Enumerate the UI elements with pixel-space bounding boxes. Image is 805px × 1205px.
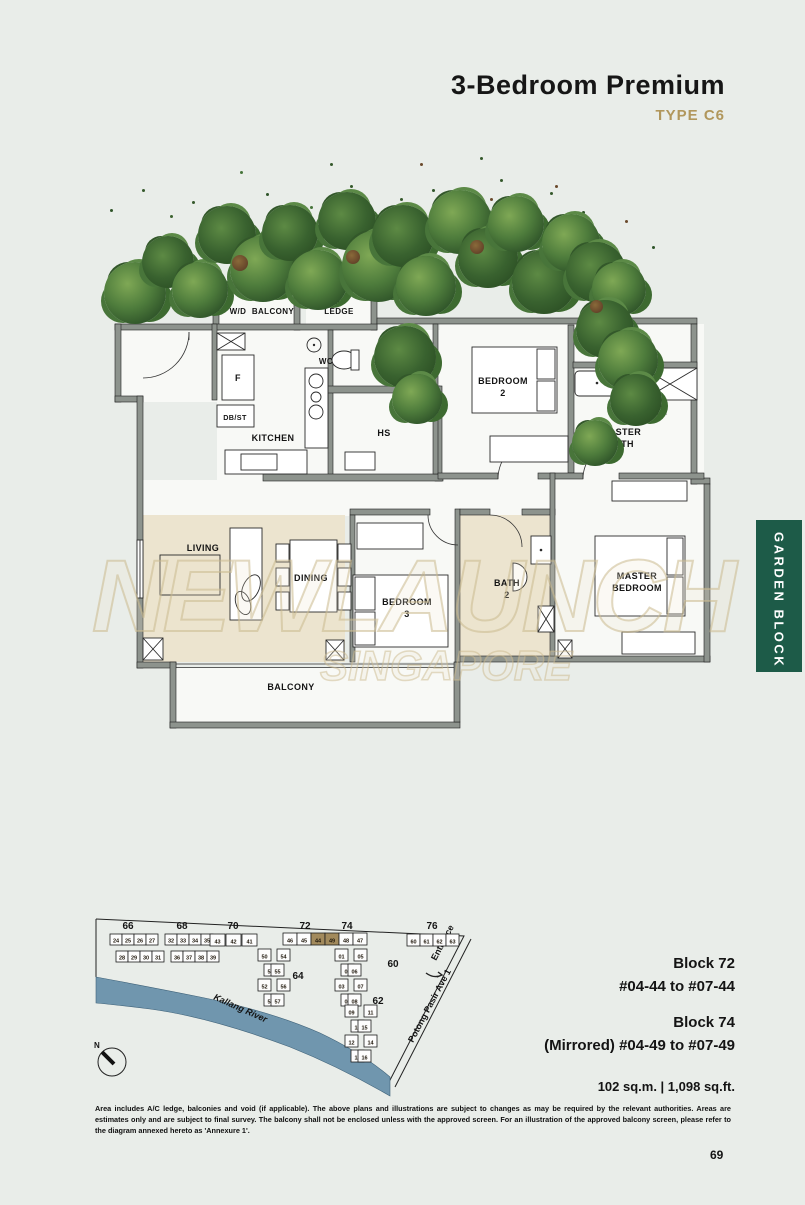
site-unit-number: 16 — [361, 1055, 367, 1061]
ac-ledge-top-floor — [306, 288, 371, 324]
site-unit-number: 30 — [143, 956, 149, 962]
site-unit-number: 60 — [410, 939, 416, 945]
header: 3-Bedroom Premium TYPE C6 — [451, 70, 725, 124]
site-unit-number: 03 — [338, 984, 344, 990]
garden-block-tab-label: GARDEN BLOCK — [772, 520, 787, 672]
hs-step — [345, 452, 375, 470]
site-unit-number: 26 — [137, 939, 143, 945]
site-unit-number: 37 — [186, 956, 192, 962]
site-unit-number: 06 — [351, 969, 357, 975]
foliage-speckles — [240, 250, 243, 253]
wd-balcony-floor — [219, 288, 294, 324]
site-unit-number: 46 — [287, 938, 293, 944]
tree-icon — [372, 205, 434, 267]
site-unit-number: 29 — [131, 956, 137, 962]
site-unit-number: 48 — [343, 938, 349, 944]
site-unit-number: 43 — [214, 939, 220, 945]
site-unit-number: 09 — [348, 1010, 354, 1016]
block72-units: #04-44 to #07-44 — [544, 975, 735, 998]
site-unit-number: 11 — [368, 1010, 374, 1016]
block74-units: (Mirrored) #04-49 to #07-49 — [544, 1034, 735, 1057]
site-unit-number: 55 — [274, 969, 280, 975]
site-unit-number: 39 — [210, 956, 216, 962]
site-unit-number: 45 — [301, 938, 307, 944]
garden-block-tab: GARDEN BLOCK — [756, 520, 802, 672]
shrub-icon — [232, 255, 248, 271]
block72-title: Block 72 — [544, 952, 735, 975]
label-master-bath-2: BATH — [608, 439, 634, 449]
label-balcony-top: BALCONY — [252, 307, 295, 316]
foyer-floor — [121, 330, 217, 402]
page-title: 3-Bedroom Premium — [451, 70, 725, 101]
shrub-icon — [470, 240, 484, 254]
label-bath2-1: BATH — [494, 578, 520, 588]
site-unit-number: 32 — [168, 939, 174, 945]
site-unit-number: 31 — [155, 956, 161, 962]
site-unit-number: 34 — [192, 939, 199, 945]
tree-icon — [318, 192, 376, 250]
tree-icon — [262, 205, 318, 261]
label-bedroom3-2: 3 — [404, 609, 409, 619]
site-unit-number: 52 — [261, 984, 267, 990]
site-unit-number: 08 — [351, 999, 357, 1005]
tree-icon — [488, 196, 544, 252]
label-ac-top-1: A/C — [332, 297, 347, 306]
label-kitchen: KITCHEN — [252, 433, 295, 443]
label-ac-right-1: A/C — [622, 334, 637, 343]
site-unit-number: 05 — [357, 954, 363, 960]
site-unit-number: 41 — [246, 939, 252, 945]
label-bath2-2: 2 — [504, 590, 509, 600]
site-building-label: 74 — [341, 921, 353, 932]
unit-info: Block 72 #04-44 to #07-44 Block 74 (Mirr… — [544, 952, 735, 1094]
site-unit-number: 49 — [329, 938, 335, 944]
site-building-label: 72 — [299, 921, 311, 932]
floor-plan-drawing: W/D BALCONY A/C LEDGE WC F DB/ST KITCHEN… — [113, 278, 713, 738]
site-unit-number: 50 — [261, 954, 267, 960]
label-balcony: BALCONY — [267, 682, 314, 692]
site-building-label: 66 — [122, 921, 134, 932]
site-unit-number: 27 — [149, 939, 155, 945]
label-f: F — [235, 373, 241, 383]
tree-icon — [198, 206, 256, 264]
site-unit-number: 33 — [180, 939, 186, 945]
north-compass-icon: N — [94, 1041, 126, 1076]
site-unit-number: 35 — [204, 939, 210, 945]
label-hs: HS — [377, 428, 390, 438]
site-unit-number: 15 — [361, 1025, 367, 1031]
site-unit-number: 63 — [449, 939, 455, 945]
site-building-label: 64 — [292, 971, 304, 982]
label-master-bath-1: MASTER — [601, 427, 642, 437]
label-bedroom2-2: 2 — [500, 388, 505, 398]
road-edge — [395, 939, 471, 1087]
site-unit-number: 56 — [280, 984, 286, 990]
brochure-page: 3-Bedroom Premium TYPE C6 — [0, 0, 805, 1205]
balcony-floor — [176, 668, 454, 724]
site-unit-number: 57 — [274, 999, 280, 1005]
label-master-bedroom-1: MASTER — [617, 571, 658, 581]
label-bedroom2-1: BEDROOM — [478, 376, 528, 386]
site-unit-number: 47 — [357, 938, 363, 944]
site-building-label: 68 — [176, 921, 188, 932]
page-number: 69 — [710, 1148, 723, 1162]
site-unit-number: 54 — [280, 954, 287, 960]
site-unit-number: 61 — [423, 939, 429, 945]
label-master-bedroom-2: BEDROOM — [612, 583, 662, 593]
site-building-label: 70 — [227, 921, 239, 932]
site-unit-number: 28 — [119, 956, 125, 962]
label-wc: WC — [319, 357, 333, 366]
site-building-label: 60 — [387, 959, 399, 970]
site-plan: Kallang River Potong Pasir Ave 1 Entranc… — [90, 905, 480, 1105]
site-unit-number: 24 — [113, 939, 120, 945]
label-ac-right-2: LEDGE — [614, 345, 644, 354]
unit-type-label: TYPE C6 — [451, 107, 725, 124]
label-ac-top-2: LEDGE — [324, 307, 354, 316]
site-unit-number: 07 — [357, 984, 363, 990]
tree-icon — [542, 214, 600, 272]
site-unit-number: 38 — [198, 956, 204, 962]
site-unit-number: 62 — [436, 939, 442, 945]
north-label: N — [94, 1041, 100, 1050]
block74-title: Block 74 — [544, 1011, 735, 1034]
site-unit-number: 14 — [367, 1040, 374, 1046]
site-unit-number: 42 — [230, 939, 236, 945]
site-unit-number: 36 — [174, 956, 180, 962]
floor-plan: W/D BALCONY A/C LEDGE WC F DB/ST KITCHEN… — [113, 278, 713, 743]
unit-area: 102 sq.m. | 1,098 sq.ft. — [544, 1079, 735, 1094]
label-dbst: DB/ST — [223, 413, 247, 422]
site-unit-number: 01 — [338, 954, 344, 960]
label-wd: W/D — [230, 307, 247, 316]
road-label: Potong Pasir Ave 1 — [406, 967, 453, 1044]
disclaimer-text: Area includes A/C ledge, balconies and v… — [95, 1104, 731, 1137]
site-building-label: 76 — [426, 921, 438, 932]
shrub-icon — [346, 250, 360, 264]
label-living: LIVING — [187, 543, 219, 553]
site-unit-number: 25 — [125, 939, 131, 945]
site-unit-number: 12 — [348, 1040, 354, 1046]
tree-icon — [428, 190, 492, 254]
foliage-speckles — [170, 215, 173, 218]
label-dining: DINING — [294, 573, 328, 583]
site-unit-number: 44 — [315, 938, 322, 944]
site-plan-drawing: Kallang River Potong Pasir Ave 1 Entranc… — [90, 905, 480, 1100]
label-bedroom3-1: BEDROOM — [382, 597, 432, 607]
